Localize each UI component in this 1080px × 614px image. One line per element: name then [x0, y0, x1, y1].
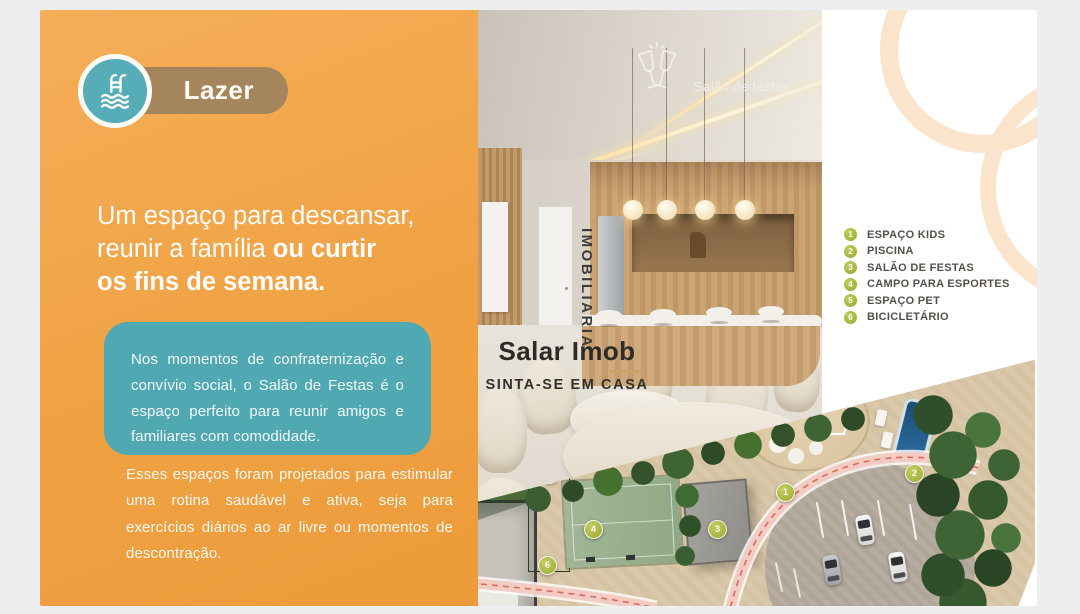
palm-trees — [673, 480, 705, 572]
kitchen-niche — [632, 214, 794, 272]
brand-name: Salar Imob — [478, 336, 656, 367]
plan-marker-3: 3 — [708, 520, 727, 539]
amenity-row: 6 BICICLETÁRIO — [844, 311, 1010, 324]
kitchen-cabinetry — [590, 162, 822, 326]
amenity-number: 1 — [844, 228, 857, 241]
chair — [478, 388, 527, 473]
amenity-row: 5 ESPAÇO PET — [844, 294, 1010, 307]
amenity-row: 2 PISCINA — [844, 245, 1010, 258]
plan-marker-2: 2 — [905, 464, 924, 483]
bar-stool — [706, 307, 732, 318]
brand-tagline: SINTA-SE EM CASA — [478, 377, 656, 393]
headline-line3-bold: os fins de semana. — [97, 268, 325, 296]
amenity-row: 4 CAMPO PARA ESPORTES — [844, 278, 1010, 291]
amenity-number: 4 — [844, 278, 857, 291]
headline-line2-bold: ou curtir — [273, 235, 376, 263]
amenities-list: 1 ESPAÇO KIDS 2 PISCINA 3 SALÃO DE FESTA… — [844, 228, 1010, 328]
hedge — [908, 370, 1026, 606]
bar-stool — [650, 309, 676, 320]
watermark-text: IMOBILIARIA — [578, 228, 595, 343]
leisure-panel: Lazer Um espaço para descansar, reunir — [40, 10, 478, 606]
amenity-row: 3 SALÃO DE FESTAS — [844, 261, 1010, 274]
brand-underline — [610, 370, 644, 373]
section-icon-badge — [78, 54, 152, 128]
plan-marker-6: 6 — [538, 556, 557, 575]
plan-marker-4: 4 — [584, 520, 603, 539]
bar-stool — [596, 310, 622, 321]
amenity-label: ESPAÇO KIDS — [867, 229, 945, 241]
bar-stool — [758, 306, 784, 317]
amenity-label: ESPAÇO PET — [867, 295, 940, 307]
callout-text: Nos momentos de confraternização e conví… — [131, 347, 404, 450]
photo-caption: Salão de festas — [628, 40, 790, 107]
amenity-label: SALÃO DE FESTAS — [867, 262, 974, 274]
refrigerator — [598, 216, 624, 318]
headline-line2: reunir a família — [97, 235, 273, 263]
wall-frame — [482, 202, 508, 312]
swimming-pool-icon — [93, 67, 137, 116]
champagne-glasses-icon — [628, 40, 686, 107]
plan-marker-1: 1 — [776, 483, 795, 502]
headline: Um espaço para descansar, reunir a famíl… — [97, 200, 465, 299]
page-background: Lazer Um espaço para descansar, reunir — [0, 0, 1080, 614]
amenity-label: BICICLETÁRIO — [867, 311, 949, 323]
amenity-row: 1 ESPAÇO KIDS — [844, 228, 1010, 241]
headline-line1: Um espaço para descansar, — [97, 202, 415, 230]
callout-box: Nos momentos de confraternização e conví… — [104, 322, 431, 455]
amenity-number: 6 — [844, 311, 857, 324]
body-paragraph: Esses espaços foram projetados para esti… — [126, 462, 453, 568]
amenity-number: 3 — [844, 261, 857, 274]
brand-logo: Salar Imob SINTA-SE EM CASA — [478, 336, 656, 393]
amenity-number: 2 — [844, 245, 857, 258]
amenity-number: 5 — [844, 294, 857, 307]
section-title: Lazer — [184, 75, 254, 106]
amenity-label: CAMPO PARA ESPORTES — [867, 278, 1010, 290]
photo-caption-text: Salão de festas — [694, 79, 790, 94]
amenity-label: PISCINA — [867, 245, 914, 257]
brochure-slide: Lazer Um espaço para descansar, reunir — [40, 10, 1037, 606]
